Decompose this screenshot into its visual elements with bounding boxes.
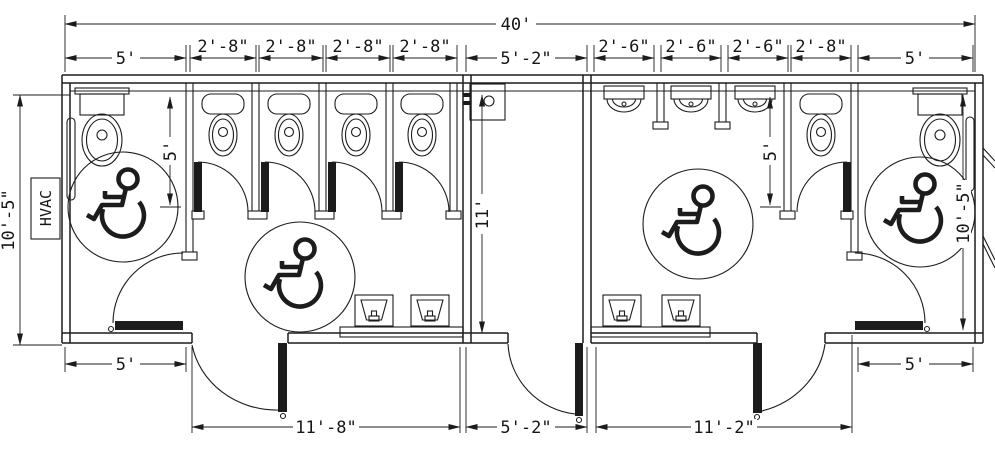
sink	[411, 295, 449, 326]
toilet	[268, 94, 310, 156]
toilet	[800, 94, 842, 156]
dim-womens-stalls: 2'-8" 2'-8" 2'-8" 2'-8"	[190, 37, 457, 72]
accessible-toilet	[75, 88, 129, 166]
dimension-label: 5'	[116, 355, 136, 375]
dim-mens-acc-width-bottom: 5'	[858, 347, 973, 375]
hvac-unit: HVAC	[31, 178, 60, 239]
dimension-label: 2'-8"	[197, 37, 248, 57]
dim-urinal-stalls: 2'-6" 2'-6" 2'-6"	[594, 37, 788, 72]
dim-corridor-depth: 11'	[473, 95, 493, 333]
dimension-label: 11'-2"	[693, 418, 754, 438]
dimension-label: 5'	[905, 49, 925, 69]
grab-bar	[966, 117, 974, 191]
toilet	[202, 94, 244, 156]
dimension-label: 2'-8"	[332, 37, 383, 57]
stall-door	[194, 162, 851, 212]
sink	[662, 295, 700, 326]
toilet	[401, 94, 443, 156]
accessible-toilet	[913, 88, 967, 166]
hvac-label: HVAC	[37, 190, 55, 226]
urinal	[604, 86, 644, 112]
dim-corridor-width: 5'-2"	[466, 45, 587, 72]
urinal	[671, 86, 711, 112]
dimension-label: 5'	[161, 141, 181, 161]
wheelchair-accessibility-icon	[245, 222, 355, 332]
dimension-label: 11'	[473, 199, 493, 230]
dim-mens-stall: 2'-8"	[791, 37, 851, 72]
dim-mens-stall-depth: 5'	[760, 97, 781, 207]
dimension-label: 2'-6"	[598, 37, 649, 57]
entry-door	[192, 343, 825, 423]
dimension-label: 5'	[905, 355, 925, 375]
dimension-label: 2'-6"	[665, 37, 716, 57]
dim-womens-entry: 11'-8"	[192, 347, 460, 438]
dimension-label: 2'-8"	[795, 37, 846, 57]
dimension-label: 10'-5"	[0, 189, 19, 250]
dimensions-vertical: 10'-5" 5' 11' 5' 10'-5"	[0, 95, 974, 345]
doors	[109, 162, 930, 423]
dim-womens-stall-depth: 5'	[160, 97, 181, 207]
dim-womens-acc-width-bottom: 5'	[65, 347, 186, 375]
dimension-label: 5'	[116, 49, 136, 69]
sink	[355, 295, 393, 326]
dimension-label: 10'-5"	[954, 182, 974, 243]
dimensions-top: 40' 5' 2'-8" 2'-8" 2'-8" 2'-8" 5'-2"	[65, 15, 975, 72]
dim-mens-acc-width: 5'	[858, 45, 973, 72]
urinal	[735, 86, 775, 112]
dimension-label: 5'-2"	[500, 418, 551, 438]
dim-right-room-depth: 10'-5"	[954, 95, 974, 330]
toilet	[335, 94, 377, 156]
dimension-label: 2'-8"	[399, 37, 450, 57]
accessible-stall-door	[109, 253, 930, 332]
dimensions-bottom: 5' 11'-8" 5'-2" 11'-2" 5'	[65, 335, 973, 438]
dimension-label: 2'-6"	[732, 37, 783, 57]
dim-womens-acc-width: 5'	[65, 45, 186, 72]
dim-mens-entry: 11'-2"	[596, 335, 852, 438]
floor-plan-page: HVAC 40' 5' 2'-8" 2'-8" 2'-8" 2	[0, 0, 995, 469]
dimension-label: 2'-8"	[265, 37, 316, 57]
dim-corridor-bottom: 5'-2"	[466, 347, 587, 438]
wheelchair-accessibility-icon	[643, 169, 753, 279]
dimension-label: 5'-2"	[500, 49, 551, 69]
dimension-label: 5'	[761, 141, 781, 161]
dimension-label: 11'-8"	[295, 418, 356, 438]
dimension-label-overall-width: 40'	[501, 15, 532, 35]
floor-plan-drawing: HVAC 40' 5' 2'-8" 2'-8" 2'-8" 2	[0, 0, 995, 469]
sink-counter	[340, 327, 463, 337]
sink	[603, 295, 641, 326]
drinking-fountain	[463, 84, 505, 120]
sink-counter	[591, 327, 710, 337]
